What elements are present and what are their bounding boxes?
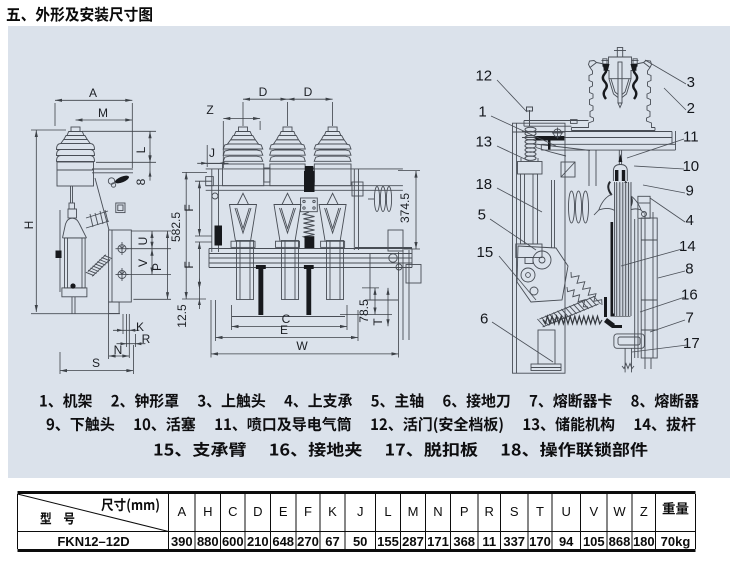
svg-text:600: 600 [222, 534, 244, 549]
svg-text:368: 368 [453, 534, 475, 549]
svg-text:7: 7 [686, 310, 694, 327]
svg-text:W: W [296, 339, 308, 353]
svg-text:1: 1 [478, 104, 486, 121]
svg-text:50: 50 [353, 534, 367, 549]
svg-text:11: 11 [482, 534, 496, 549]
svg-text:M: M [408, 504, 419, 519]
svg-text:M: M [98, 106, 108, 120]
svg-text:11: 11 [683, 129, 699, 146]
svg-text:U: U [136, 237, 150, 246]
svg-text:E: E [279, 504, 288, 519]
svg-text:H: H [22, 221, 36, 230]
svg-text:180: 180 [633, 534, 655, 549]
svg-text:T: T [371, 318, 385, 326]
svg-text:T: T [536, 504, 544, 519]
svg-text:15: 15 [477, 244, 494, 261]
svg-text:D: D [253, 504, 262, 519]
svg-text:12.5: 12.5 [175, 304, 189, 328]
svg-text:868: 868 [609, 534, 631, 549]
svg-text:6: 6 [480, 311, 488, 328]
svg-text:D: D [259, 85, 268, 99]
svg-text:C: C [228, 504, 237, 519]
svg-text:8: 8 [134, 178, 148, 185]
svg-text:L: L [384, 504, 391, 519]
svg-text:12: 12 [475, 67, 492, 84]
svg-text:14: 14 [679, 238, 696, 255]
svg-text:337: 337 [503, 534, 525, 549]
svg-text:E: E [280, 323, 288, 337]
svg-text:18: 18 [475, 176, 492, 193]
svg-text:W: W [613, 504, 626, 519]
svg-text:U: U [562, 504, 571, 519]
svg-text:2: 2 [687, 100, 695, 117]
svg-text:J: J [357, 504, 364, 519]
svg-text:F: F [182, 261, 196, 268]
svg-text:P: P [150, 263, 164, 271]
svg-text:170: 170 [529, 534, 551, 549]
svg-text:Z: Z [206, 103, 213, 117]
svg-text:880: 880 [197, 534, 219, 549]
svg-text:171: 171 [427, 534, 449, 549]
svg-text:105: 105 [583, 534, 605, 549]
svg-text:R: R [485, 504, 494, 519]
svg-text:F: F [182, 204, 196, 211]
svg-text:S: S [92, 356, 100, 370]
svg-text:L: L [134, 146, 148, 153]
svg-text:270: 270 [297, 534, 319, 549]
svg-text:H: H [203, 504, 212, 519]
svg-text:13: 13 [475, 134, 492, 151]
svg-text:J: J [209, 146, 215, 160]
svg-text:V: V [136, 259, 150, 267]
svg-text:FKN12–12D: FKN12–12D [57, 534, 129, 549]
svg-text:5: 5 [478, 207, 486, 224]
svg-text:9: 9 [686, 182, 694, 199]
svg-text:Z: Z [640, 504, 648, 519]
svg-text:582.5: 582.5 [169, 212, 183, 242]
svg-text:P: P [460, 504, 469, 519]
svg-text:94: 94 [559, 534, 574, 549]
svg-text:210: 210 [247, 534, 269, 549]
svg-text:648: 648 [272, 534, 294, 549]
svg-text:K: K [328, 504, 337, 519]
svg-text:N: N [433, 504, 442, 519]
svg-text:155: 155 [377, 534, 399, 549]
svg-text:16: 16 [681, 287, 698, 304]
svg-text:R: R [142, 332, 151, 346]
svg-text:S: S [510, 504, 519, 519]
svg-text:67: 67 [325, 534, 339, 549]
svg-text:390: 390 [171, 534, 193, 549]
svg-text:3: 3 [687, 74, 695, 91]
svg-text:F: F [304, 504, 312, 519]
svg-text:A: A [89, 86, 97, 100]
svg-text:D: D [304, 85, 313, 99]
svg-text:4: 4 [686, 212, 694, 229]
svg-text:10: 10 [682, 158, 699, 175]
svg-text:N: N [114, 343, 123, 357]
svg-text:8: 8 [685, 260, 693, 277]
svg-text:78.5: 78.5 [357, 299, 371, 323]
svg-text:287: 287 [402, 534, 424, 549]
svg-text:17: 17 [683, 335, 700, 352]
svg-text:V: V [589, 504, 598, 519]
svg-text:374.5: 374.5 [398, 193, 412, 223]
svg-text:A: A [177, 504, 186, 519]
svg-text:70kg: 70kg [661, 534, 691, 549]
